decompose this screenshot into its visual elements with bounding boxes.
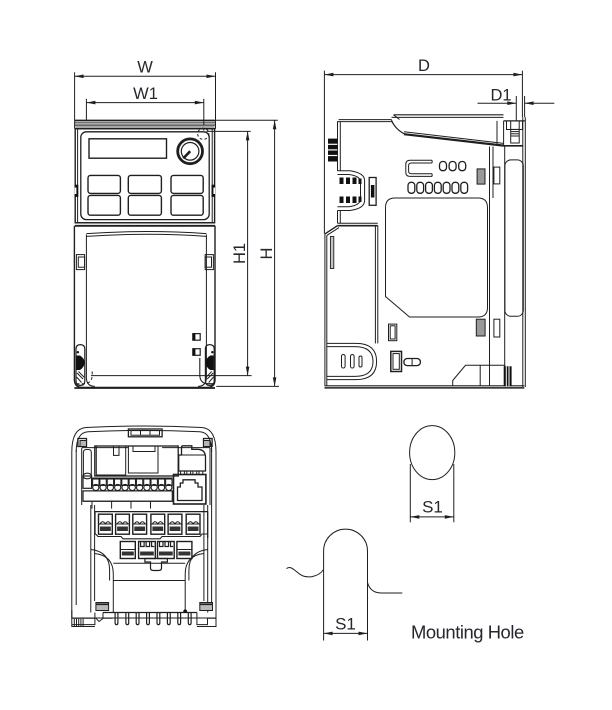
svg-text:S1: S1 [335, 615, 356, 634]
svg-text:W: W [137, 59, 153, 77]
svg-text:H: H [258, 248, 276, 260]
svg-text:S1: S1 [422, 498, 443, 517]
svg-text:Mounting Hole: Mounting Hole [411, 621, 524, 642]
svg-text:H1: H1 [231, 243, 249, 264]
svg-text:W1: W1 [133, 85, 158, 103]
svg-text:D: D [418, 57, 430, 75]
